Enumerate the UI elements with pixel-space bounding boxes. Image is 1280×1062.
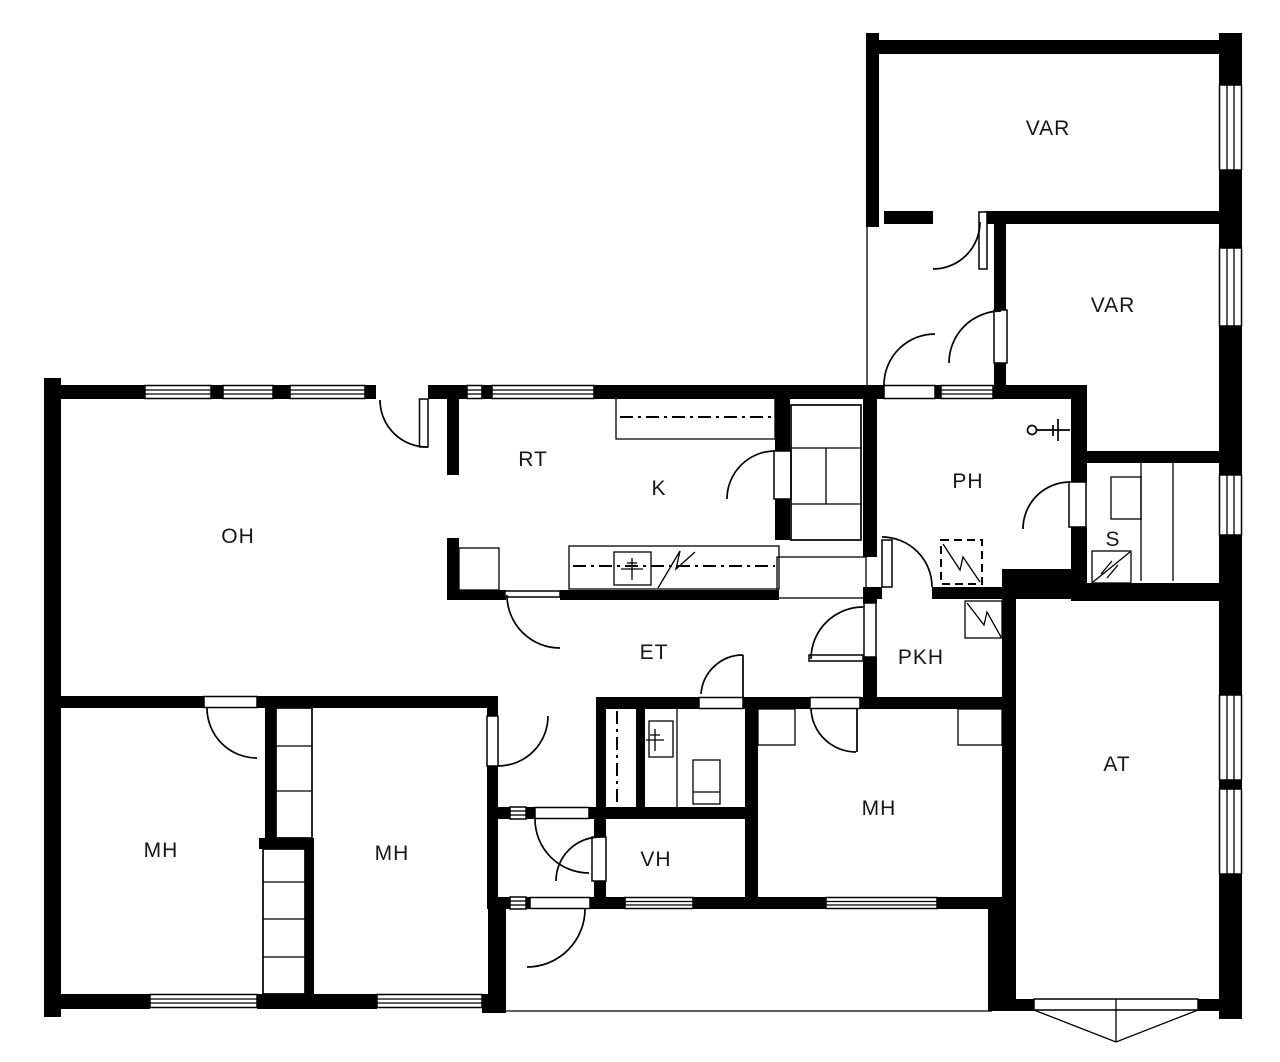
svg-text:VAR: VAR [1091, 294, 1136, 317]
svg-text:PH: PH [952, 470, 983, 493]
svg-text:S: S [1105, 528, 1120, 551]
svg-text:VAR: VAR [1026, 117, 1071, 140]
svg-text:MH: MH [144, 839, 179, 862]
svg-text:MH: MH [375, 842, 410, 865]
svg-text:RT: RT [518, 448, 548, 471]
svg-text:K: K [651, 477, 666, 500]
svg-text:VH: VH [640, 848, 671, 871]
svg-text:PKH: PKH [898, 646, 944, 669]
svg-text:AT: AT [1103, 753, 1130, 776]
svg-text:OH: OH [221, 525, 255, 548]
svg-text:ET: ET [640, 641, 669, 664]
svg-text:MH: MH [862, 797, 897, 820]
